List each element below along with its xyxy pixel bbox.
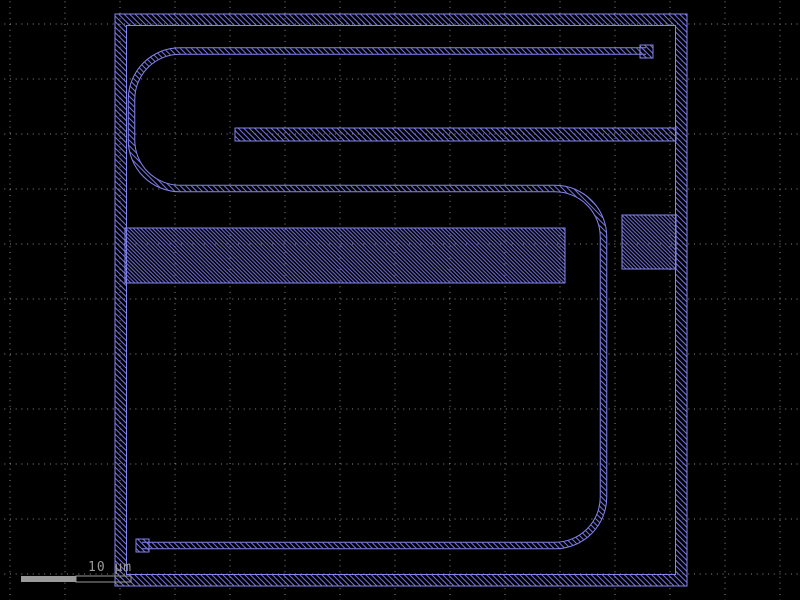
scale-bar-filled-segment (21, 576, 76, 582)
scale-bar-label: 10 µm (88, 560, 132, 575)
wide-band[interactable] (125, 228, 565, 283)
trace-pad-bottom-left[interactable] (136, 539, 149, 552)
right-pad[interactable] (622, 215, 676, 269)
layout-drawing[interactable]: 10 µm (0, 0, 800, 600)
layout-viewer-canvas[interactable]: 10 µm (0, 0, 800, 600)
trace-pad-top-right[interactable] (640, 45, 653, 58)
stub-bar[interactable] (235, 128, 676, 141)
